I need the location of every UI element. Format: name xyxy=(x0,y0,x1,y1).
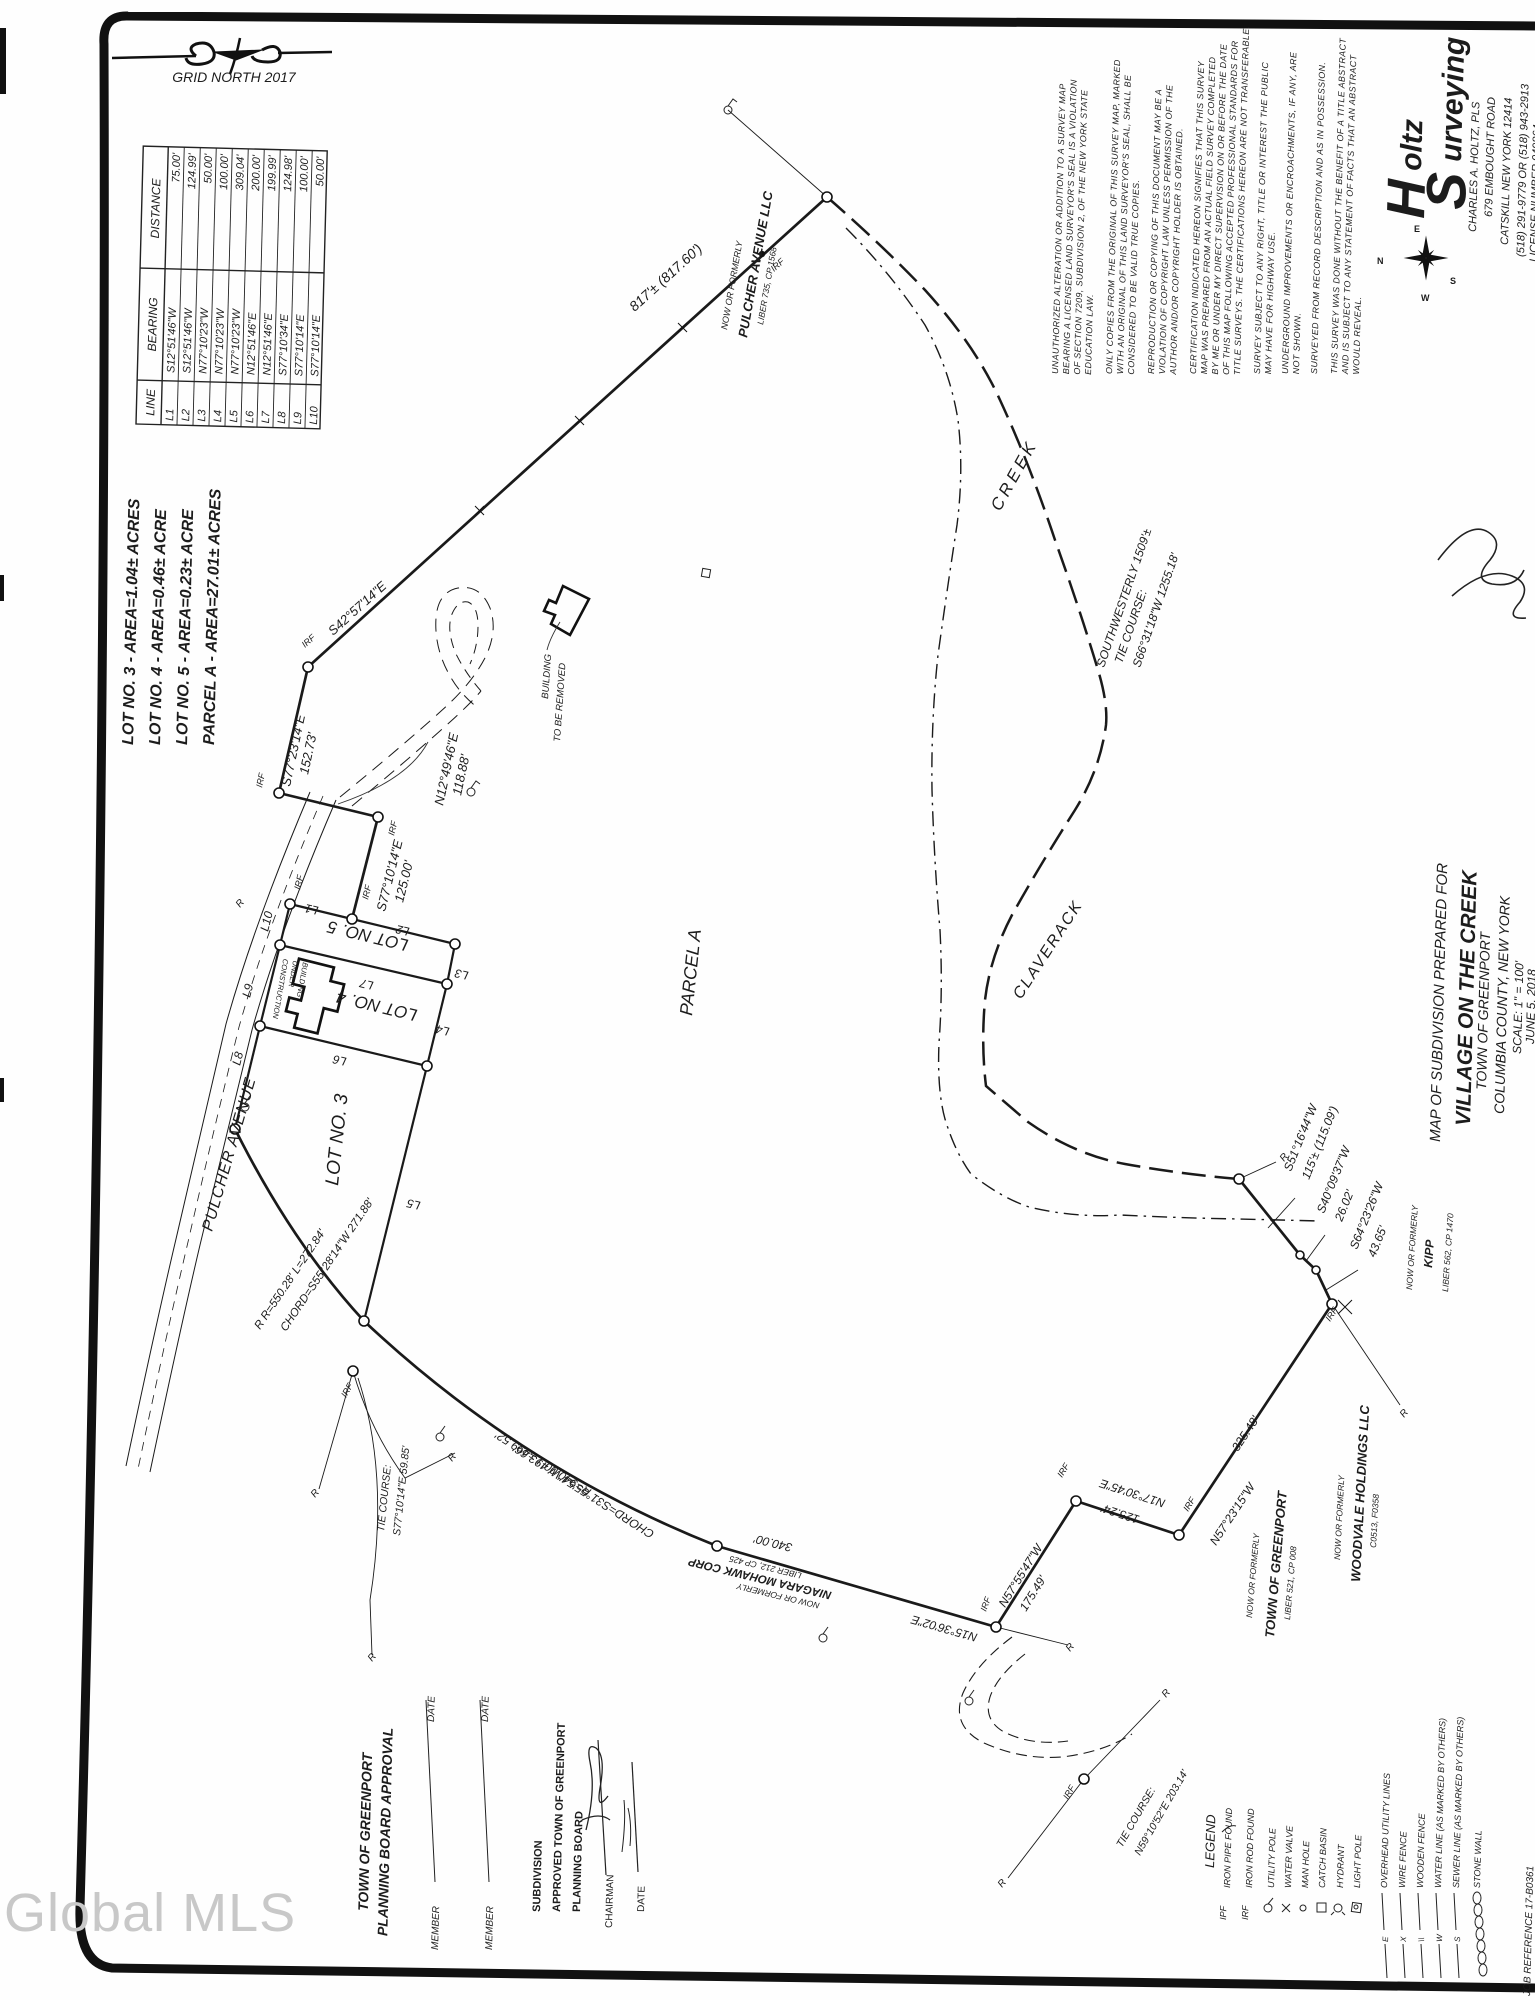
svg-text:S77°10'14"E: S77°10'14"E xyxy=(293,314,307,377)
svg-text:WOULD REVEAL.: WOULD REVEAL. xyxy=(1351,296,1363,374)
svg-text:HYDRANT: HYDRANT xyxy=(1335,1843,1346,1888)
svg-text:GRID NORTH 2017: GRID NORTH 2017 xyxy=(172,69,297,85)
svg-text:DATE: DATE xyxy=(426,1696,438,1723)
svg-text:MEMBER: MEMBER xyxy=(430,1906,442,1950)
svg-text:L10: L10 xyxy=(308,405,320,425)
svg-text:L7: L7 xyxy=(260,410,272,423)
svg-text:50.00': 50.00' xyxy=(314,156,327,187)
svg-text:124.98': 124.98' xyxy=(282,155,295,192)
svg-text:L8: L8 xyxy=(276,411,288,424)
svg-text:UTILITY POLE: UTILITY POLE xyxy=(1266,1827,1278,1888)
svg-text:urveying: urveying xyxy=(1435,36,1471,162)
svg-text:N77°10'23"W: N77°10'23"W xyxy=(197,307,211,374)
svg-text:309.04': 309.04' xyxy=(234,154,247,191)
svg-text:MAN HOLE: MAN HOLE xyxy=(1300,1840,1311,1888)
svg-text:S: S xyxy=(1453,1936,1462,1942)
svg-text:S: S xyxy=(1450,276,1456,286)
svg-text:BEARING: BEARING xyxy=(145,297,160,351)
svg-text:N77°10'23"W: N77°10'23"W xyxy=(229,307,243,374)
svg-text:Global MLS: Global MLS xyxy=(4,1883,296,1943)
svg-text:KIPP: KIPP xyxy=(1421,1238,1437,1268)
svg-text:NOT SHOWN.: NOT SHOWN. xyxy=(1291,312,1303,374)
svg-text:L9: L9 xyxy=(292,412,304,425)
svg-text:LINE: LINE xyxy=(143,388,158,416)
svg-text:E: E xyxy=(1414,224,1420,234)
svg-text:L4: L4 xyxy=(212,410,224,423)
svg-text:CHAIRMAN: CHAIRMAN xyxy=(604,1874,616,1928)
svg-text:124.99': 124.99' xyxy=(186,152,199,189)
svg-text:L5: L5 xyxy=(228,409,240,422)
svg-text:DATE: DATE xyxy=(636,1886,648,1913)
svg-text:IRF: IRF xyxy=(1240,1905,1250,1920)
svg-text:S77°10'14"E: S77°10'14"E xyxy=(309,314,323,377)
svg-text:L2: L2 xyxy=(180,409,192,422)
svg-text:N12°51'46"E: N12°51'46"E xyxy=(261,312,275,375)
svg-text:50.00': 50.00' xyxy=(202,153,215,184)
svg-text:LIGHT POLE: LIGHT POLE xyxy=(1352,1834,1363,1888)
svg-text:JOB REFERENCE 17-B0361: JOB REFERENCE 17-B0361 xyxy=(1522,1866,1535,1997)
svg-text:WIRE FENCE: WIRE FENCE xyxy=(1397,1830,1409,1888)
svg-text:DISTANCE: DISTANCE xyxy=(148,177,164,238)
svg-text:X: X xyxy=(1399,1936,1408,1943)
svg-text:STONE WALL: STONE WALL xyxy=(1472,1830,1484,1888)
svg-text:WATER VALVE: WATER VALVE xyxy=(1283,1825,1295,1888)
svg-text:100.00': 100.00' xyxy=(298,155,311,192)
svg-text:JUNE 5, 2018: JUNE 5, 2018 xyxy=(1523,969,1535,1045)
svg-text:IRON ROD FOUND: IRON ROD FOUND xyxy=(1244,1808,1256,1888)
svg-text:LEGEND: LEGEND xyxy=(1202,1814,1218,1868)
svg-text:oltz: oltz xyxy=(1395,119,1429,172)
svg-text:N77°10'23"W: N77°10'23"W xyxy=(213,307,227,374)
svg-text:DATE: DATE xyxy=(480,1696,492,1723)
svg-text:N12°51'46"E: N12°51'46"E xyxy=(245,312,259,375)
svg-text:IPF: IPF xyxy=(1218,1905,1228,1920)
svg-text:199.99': 199.99' xyxy=(266,154,279,191)
svg-text:IRON PIPE FOUND: IRON PIPE FOUND xyxy=(1222,1807,1234,1888)
svg-text:E: E xyxy=(1381,1936,1390,1942)
svg-text:W: W xyxy=(1421,293,1430,303)
svg-text:MEMBER: MEMBER xyxy=(484,1906,496,1950)
svg-text:S12°51'46"W: S12°51'46"W xyxy=(181,307,195,374)
svg-text:CATCH BASIN: CATCH BASIN xyxy=(1317,1827,1329,1888)
svg-text:L6: L6 xyxy=(244,410,256,423)
svg-text:L1: L1 xyxy=(164,408,176,421)
svg-text:L3: L3 xyxy=(196,408,208,421)
svg-text:S77°10'34"E: S77°10'34"E xyxy=(277,313,291,376)
svg-text:SUBDIVISION: SUBDIVISION xyxy=(531,1840,545,1912)
svg-text:S12°51'46"W: S12°51'46"W xyxy=(165,306,179,373)
svg-text:N: N xyxy=(1377,256,1384,266)
svg-text:200.00': 200.00' xyxy=(250,154,263,192)
svg-text:\\: \\ xyxy=(1417,1937,1426,1942)
svg-text:100.00': 100.00' xyxy=(218,153,231,190)
svg-text:WOODEN FENCE: WOODEN FENCE xyxy=(1415,1812,1427,1888)
svg-text:EDUCATION LAW.: EDUCATION LAW. xyxy=(1083,294,1095,375)
svg-text:75.00': 75.00' xyxy=(170,152,183,183)
